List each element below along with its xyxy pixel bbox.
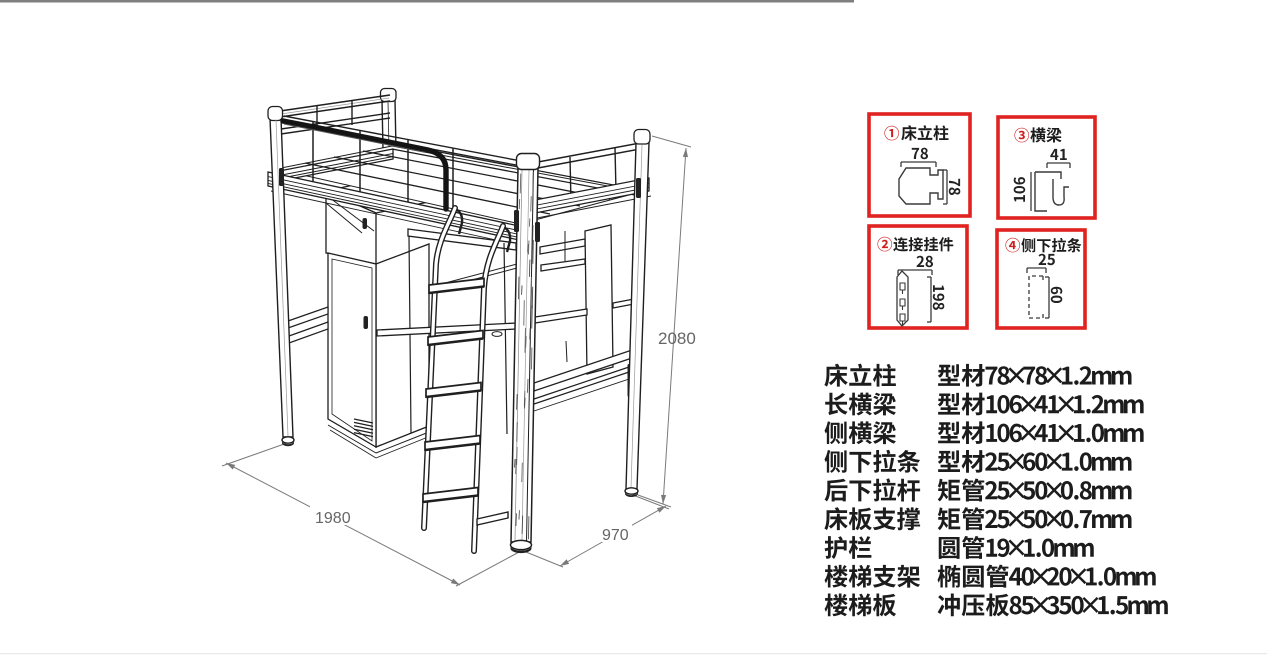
svg-text:970: 970: [602, 527, 629, 544]
svg-text:1980: 1980: [315, 510, 351, 527]
svg-text:2080: 2080: [658, 329, 696, 348]
